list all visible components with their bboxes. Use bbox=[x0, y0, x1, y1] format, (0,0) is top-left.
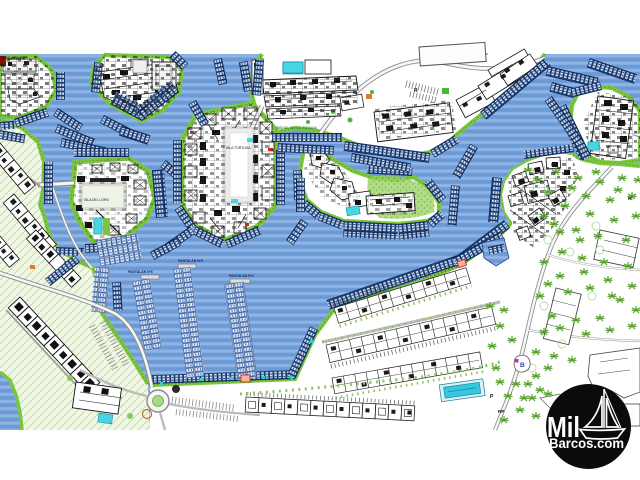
svg-text:RP: RP bbox=[498, 409, 504, 414]
svg-text:ISLA DEL LORO: ISLA DEL LORO bbox=[84, 198, 109, 202]
svg-text:RIBERA DE LA ROMANA: RIBERA DE LA ROMANA bbox=[276, 126, 318, 130]
svg-text:ISLA TORTUGA: ISLA TORTUGA bbox=[226, 146, 251, 150]
svg-text:R: R bbox=[414, 88, 418, 94]
svg-text:PANTALÁN Nº5: PANTALÁN Nº5 bbox=[178, 258, 203, 263]
svg-text:B: B bbox=[520, 362, 525, 369]
svg-text:ISLA CAPRI: ISLA CAPRI bbox=[8, 57, 25, 61]
svg-text:PANTALÁN Nº6: PANTALÁN Nº6 bbox=[128, 269, 153, 274]
svg-text:PANTALÁN Nº4: PANTALÁN Nº4 bbox=[229, 273, 254, 278]
svg-text:RI: RI bbox=[628, 196, 633, 201]
